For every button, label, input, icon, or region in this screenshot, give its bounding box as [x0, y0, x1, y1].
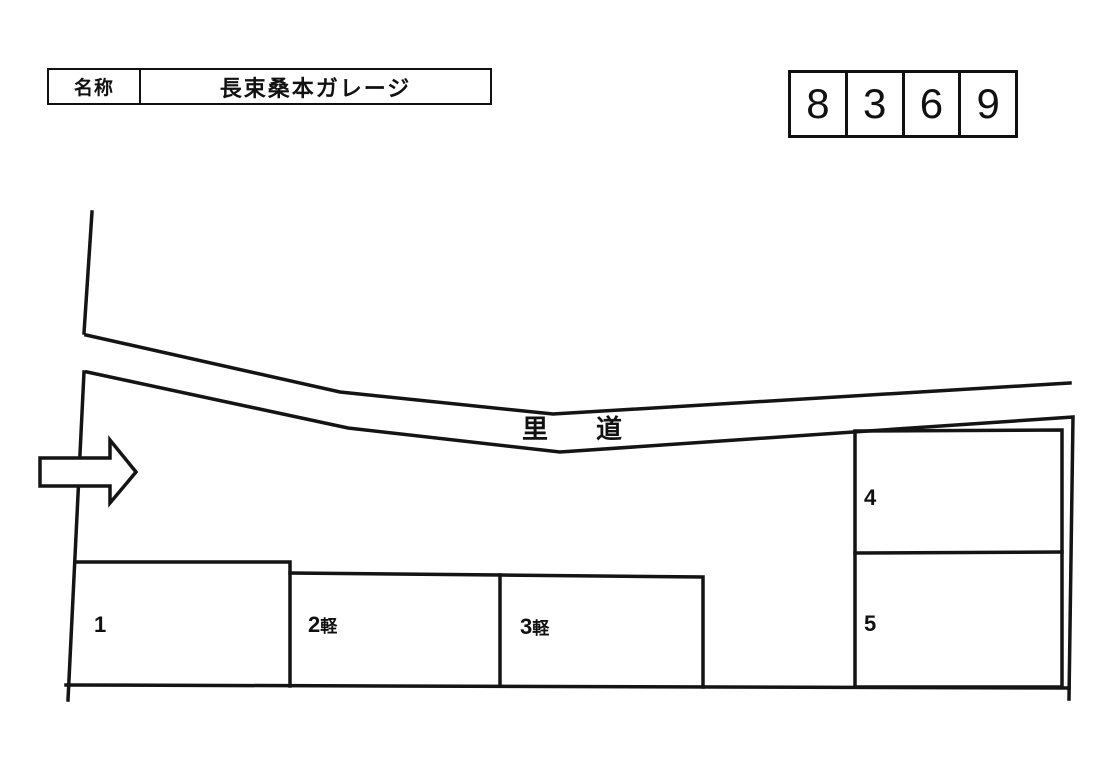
space-4-5-divider — [855, 552, 1062, 553]
space-label-2: 2軽 — [308, 614, 337, 636]
space-label-1: 1 — [94, 614, 106, 636]
space-label-5: 5 — [864, 613, 876, 635]
space-label-3: 3軽 — [520, 616, 549, 638]
boundary-upper-left — [84, 212, 92, 333]
road-label: 里 道 — [522, 416, 622, 442]
space-label-4: 4 — [864, 487, 876, 509]
space-4-5-outline — [855, 430, 1062, 687]
boundary-left — [68, 372, 84, 700]
parking-layout-page: 名称 長束桑本ガレージ 8 3 6 9 里 道 — [0, 0, 1110, 777]
entrance-arrow-icon — [40, 440, 136, 503]
space-1-outline — [75, 562, 290, 686]
site-plan-drawing — [0, 0, 1110, 777]
road-label-char-2: 道 — [596, 416, 622, 442]
road-label-char-1: 里 — [522, 416, 548, 442]
